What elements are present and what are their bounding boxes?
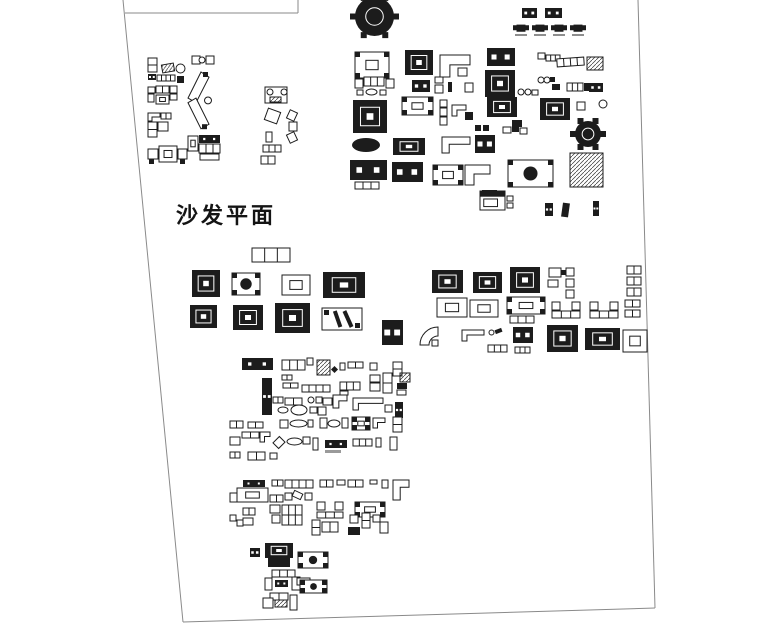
furniture-darkpat xyxy=(513,327,533,343)
furniture-sofa xyxy=(283,383,298,388)
furniture-oval xyxy=(328,420,340,427)
furniture-oval xyxy=(290,420,307,427)
furniture-box xyxy=(503,127,511,133)
furniture-box xyxy=(520,128,527,134)
furniture-box xyxy=(200,154,219,160)
furniture-sofa xyxy=(353,439,372,446)
furniture-darkpat xyxy=(148,74,156,80)
furniture-dark xyxy=(550,77,555,82)
furniture-box xyxy=(538,53,545,59)
furniture-seat xyxy=(263,598,273,608)
furniture-darkset xyxy=(473,272,502,293)
furniture-seat xyxy=(572,302,580,310)
furniture-seat xyxy=(320,418,327,428)
furniture-sset xyxy=(507,297,545,314)
furniture-box xyxy=(337,480,345,485)
furniture-darkpat xyxy=(250,548,260,557)
furniture-L xyxy=(465,165,490,185)
furniture-seat xyxy=(270,453,277,459)
furniture-seat xyxy=(305,493,312,500)
furniture-box xyxy=(170,86,177,93)
furniture-box xyxy=(206,56,214,64)
furniture-hatch xyxy=(587,57,603,70)
furniture-sofa xyxy=(362,513,370,528)
furniture-darkset xyxy=(540,98,570,120)
furniture-set xyxy=(282,275,310,295)
furniture-box xyxy=(323,398,332,405)
furniture-box xyxy=(440,108,447,116)
furniture-sofa xyxy=(270,495,283,502)
furniture-box xyxy=(370,383,380,391)
furniture-sofa xyxy=(557,57,584,67)
furniture-darkset xyxy=(510,267,540,293)
furniture-dark xyxy=(465,112,473,120)
furniture-box xyxy=(178,149,187,159)
furniture-dark xyxy=(177,76,184,83)
furniture-seat xyxy=(280,420,288,428)
furniture-sofa xyxy=(248,452,265,460)
furniture-set xyxy=(470,300,498,317)
furniture-dark xyxy=(397,383,407,389)
furniture-set xyxy=(237,488,268,502)
furniture-box xyxy=(532,90,538,95)
furniture-box xyxy=(230,493,237,502)
furniture-circle xyxy=(267,89,273,95)
furniture-sofa xyxy=(590,311,618,318)
furniture-box xyxy=(507,203,513,208)
furniture-sofa xyxy=(627,277,641,285)
furniture-darktop xyxy=(480,191,505,210)
furniture-darkset xyxy=(432,270,463,293)
furniture-sofa xyxy=(625,300,640,307)
furniture-dark xyxy=(483,125,489,131)
furniture-oval xyxy=(291,405,307,415)
furniture-dark xyxy=(512,125,519,132)
furniture-sofa xyxy=(273,397,283,403)
furniture-darkset xyxy=(585,328,620,350)
furniture-L xyxy=(373,418,385,428)
furniture-box xyxy=(316,397,322,403)
drawing-title: 沙发平面 xyxy=(176,198,276,230)
furniture-sofa xyxy=(230,452,240,458)
furniture-sofa xyxy=(243,508,255,515)
furniture-circle xyxy=(518,89,524,95)
furniture-set xyxy=(188,136,198,151)
furniture-box xyxy=(465,83,473,92)
furniture-L xyxy=(260,432,270,442)
furniture-seat xyxy=(610,302,618,310)
furniture-L xyxy=(148,113,160,121)
furniture-box xyxy=(370,363,377,370)
furniture-sofa xyxy=(230,421,243,428)
furniture-L xyxy=(462,330,484,341)
furniture-sofa xyxy=(355,182,379,189)
furniture-sofa xyxy=(302,385,330,392)
furniture-seat xyxy=(342,418,348,428)
furniture-box xyxy=(243,518,253,525)
furniture-box xyxy=(357,90,363,95)
furniture-hatch xyxy=(317,360,330,375)
furniture-sofa xyxy=(510,316,534,323)
furniture-dark xyxy=(552,84,560,90)
furniture-darkset xyxy=(192,270,220,297)
furniture-box xyxy=(292,490,303,499)
furniture-oval xyxy=(287,438,302,445)
furniture-box xyxy=(390,437,397,450)
cad-canvas xyxy=(0,0,780,624)
furniture-sofa xyxy=(627,266,641,274)
furniture-darkpat xyxy=(262,378,272,415)
furniture-sofa xyxy=(488,345,507,352)
furniture-darkpat xyxy=(593,201,599,216)
furniture-sofa xyxy=(242,432,259,438)
furniture-darkset xyxy=(233,305,263,330)
furniture-darkpat xyxy=(243,480,265,487)
furniture-sofa xyxy=(322,522,338,532)
furniture-seat xyxy=(566,268,574,276)
furniture-darkpat xyxy=(395,402,403,418)
furniture-darkset xyxy=(265,543,293,558)
furniture-box xyxy=(158,122,168,131)
furniture-dark xyxy=(180,159,185,164)
furniture-box xyxy=(549,268,561,277)
furniture-box xyxy=(458,68,467,76)
furniture-dark xyxy=(448,82,452,92)
furniture-darkpat xyxy=(325,440,347,448)
furniture-seat xyxy=(373,515,380,522)
furniture-darkpat xyxy=(487,48,515,66)
furniture-flower xyxy=(570,118,606,150)
furniture-seat xyxy=(286,110,297,122)
furniture-microtext xyxy=(325,450,341,453)
furniture-darkpat xyxy=(412,80,430,92)
furniture-L xyxy=(442,137,470,153)
furniture-box xyxy=(310,407,317,413)
furniture-sofa xyxy=(317,512,343,518)
furniture-chev xyxy=(188,72,211,129)
furniture-sofa xyxy=(148,122,157,137)
furniture-oval xyxy=(278,407,288,413)
furniture-sofa xyxy=(272,480,283,486)
furniture-dark xyxy=(348,527,360,535)
furniture-sofa xyxy=(285,480,313,488)
furniture-sofa xyxy=(348,480,363,487)
furniture-hatch xyxy=(570,153,603,187)
furniture-box xyxy=(370,375,380,382)
furniture-box xyxy=(148,94,154,102)
furniture-box xyxy=(382,480,388,488)
furniture-sofa xyxy=(156,86,169,93)
furniture-seat xyxy=(289,122,297,131)
furniture-dark xyxy=(561,203,570,218)
border-line xyxy=(638,0,655,608)
furniture-seat xyxy=(566,279,574,287)
furniture-darkpat xyxy=(242,358,273,370)
furniture-rset xyxy=(508,160,553,187)
furniture-circle xyxy=(544,77,550,83)
furniture-darkset xyxy=(190,305,217,328)
furniture-box xyxy=(440,100,447,107)
furniture-box xyxy=(385,405,392,412)
furniture-seat xyxy=(308,420,313,427)
furniture-sofa xyxy=(199,144,220,153)
furniture-box xyxy=(380,90,386,95)
furniture-rset xyxy=(298,552,328,568)
furniture-L xyxy=(333,395,347,408)
furniture-dine xyxy=(551,25,567,35)
furniture-box xyxy=(370,480,377,484)
furniture-darkpat xyxy=(275,580,288,587)
furniture-sofa xyxy=(248,422,263,428)
furniture-darkoval xyxy=(352,138,380,152)
furniture-box xyxy=(307,358,313,365)
furniture-circle xyxy=(599,100,607,108)
furniture-box xyxy=(230,437,240,445)
furniture-box xyxy=(266,132,272,142)
furniture-darkset xyxy=(353,100,387,133)
furniture-seat xyxy=(566,290,574,298)
furniture-box xyxy=(440,117,447,125)
furniture-sofa xyxy=(320,480,333,487)
furniture-L xyxy=(393,480,409,500)
furniture-circle xyxy=(281,89,287,95)
furniture-darkset xyxy=(485,70,515,97)
furniture-seat xyxy=(335,502,343,510)
furniture-set xyxy=(623,330,647,352)
furniture-box xyxy=(170,94,177,100)
border-line xyxy=(183,608,655,622)
furniture-darkset xyxy=(547,325,578,352)
furniture-sofa xyxy=(157,75,175,81)
furniture-circle xyxy=(525,89,531,95)
furniture-box xyxy=(290,595,297,610)
furniture-sofa xyxy=(263,145,281,152)
furniture-blocks xyxy=(148,0,647,610)
furniture-box xyxy=(318,407,326,415)
furniture-sofa xyxy=(340,382,360,390)
furniture-seat xyxy=(386,79,394,88)
furniture-darkpat xyxy=(589,83,603,92)
furniture-box xyxy=(237,520,243,526)
furniture-darkset xyxy=(323,272,365,298)
furniture-seat xyxy=(285,493,292,500)
furniture-dark xyxy=(561,270,566,275)
furniture-box xyxy=(380,522,388,533)
furniture-circle xyxy=(489,330,494,335)
furniture-circle xyxy=(538,77,544,83)
furniture-sofa xyxy=(364,77,384,86)
furniture-sset xyxy=(433,165,463,185)
furniture-darkpat xyxy=(382,320,403,345)
cad-drawing-page: 沙发平面 xyxy=(0,0,780,624)
furniture-hatch xyxy=(400,373,410,382)
furniture-box xyxy=(148,87,155,93)
furniture-L xyxy=(452,105,466,116)
furniture-sofa xyxy=(282,360,305,370)
furniture-box xyxy=(230,515,236,521)
furniture-seat xyxy=(317,502,325,510)
furniture-darkpat xyxy=(199,135,220,143)
furniture-sofa xyxy=(515,347,530,353)
furniture-box xyxy=(507,196,513,201)
furniture-sofa xyxy=(252,248,290,262)
furniture-sofa xyxy=(312,520,320,535)
furniture-dark xyxy=(268,558,290,567)
furniture-sofa xyxy=(282,515,302,525)
furniture-sofa xyxy=(552,311,580,318)
furniture-seat xyxy=(552,302,560,310)
furniture-dine xyxy=(513,25,529,35)
furniture-sofa xyxy=(261,156,275,164)
furniture-darkpat xyxy=(392,162,423,182)
furniture-box xyxy=(340,391,348,395)
furniture-sset xyxy=(402,97,433,115)
furniture-darkpat xyxy=(545,8,562,18)
furniture-box xyxy=(432,340,438,346)
furniture-box xyxy=(313,438,318,450)
furniture-dine xyxy=(532,25,548,35)
furniture-oval xyxy=(366,89,377,95)
furniture-rset xyxy=(232,273,260,295)
furniture-sofa xyxy=(282,505,302,515)
furniture-hatch xyxy=(275,600,287,607)
furniture-sofa xyxy=(383,373,392,393)
furniture-sofa xyxy=(272,570,295,577)
furniture-sofa xyxy=(161,113,171,119)
furniture-seat xyxy=(286,132,297,144)
furniture-box xyxy=(350,515,358,523)
furniture-darkpat xyxy=(522,8,537,18)
furniture-dark xyxy=(331,366,338,373)
furniture-box xyxy=(264,108,280,124)
furniture-box xyxy=(148,149,158,159)
furniture-dark xyxy=(495,328,503,334)
furniture-sofa xyxy=(627,288,641,296)
furniture-seat xyxy=(355,79,363,88)
furniture-box xyxy=(435,85,443,93)
furniture-sset xyxy=(355,52,389,78)
furniture-darkset xyxy=(275,303,310,333)
furniture-set xyxy=(156,95,169,104)
furniture-rset xyxy=(300,580,327,593)
furniture-sofa xyxy=(567,83,583,91)
furniture-box xyxy=(435,77,443,83)
furniture-circle xyxy=(176,64,185,73)
furniture-darkpat xyxy=(475,135,495,153)
furniture-darkset xyxy=(405,50,433,75)
furniture-dark xyxy=(584,83,589,91)
furniture-seat xyxy=(272,515,280,523)
furniture-sofa xyxy=(393,417,402,432)
furniture-sofa xyxy=(285,398,302,405)
furniture-seat xyxy=(303,437,310,444)
furniture-hatch xyxy=(270,97,281,102)
furniture-box xyxy=(397,390,406,395)
furniture-darkpat xyxy=(545,203,553,216)
furniture-darkpat xyxy=(350,160,387,180)
furniture-sofa xyxy=(348,362,363,368)
furniture-seat xyxy=(590,302,598,310)
furniture-hatch xyxy=(161,63,174,73)
furniture-darkset xyxy=(393,138,425,155)
furniture-circle xyxy=(199,57,205,63)
furniture-circle xyxy=(308,397,314,403)
furniture-sofa xyxy=(625,310,640,317)
furniture-sofa xyxy=(148,58,157,72)
furniture-box xyxy=(577,102,585,110)
furniture-dine xyxy=(570,25,586,35)
furniture-dark xyxy=(149,159,154,164)
furniture-darkset xyxy=(487,97,517,117)
furniture-sofa xyxy=(282,375,292,380)
furniture-box xyxy=(548,280,558,287)
furniture-sset xyxy=(352,417,370,430)
furniture-seat xyxy=(376,438,381,447)
furniture-seat xyxy=(270,505,280,513)
furniture-seat xyxy=(273,436,285,448)
furniture-L xyxy=(353,398,383,410)
furniture-set xyxy=(159,146,177,162)
furniture-dark xyxy=(475,125,481,131)
furniture-set xyxy=(437,298,467,317)
furniture-flower xyxy=(350,0,399,38)
furniture-seat xyxy=(265,578,272,590)
furniture-box xyxy=(340,363,345,370)
furniture-vset xyxy=(322,308,362,330)
